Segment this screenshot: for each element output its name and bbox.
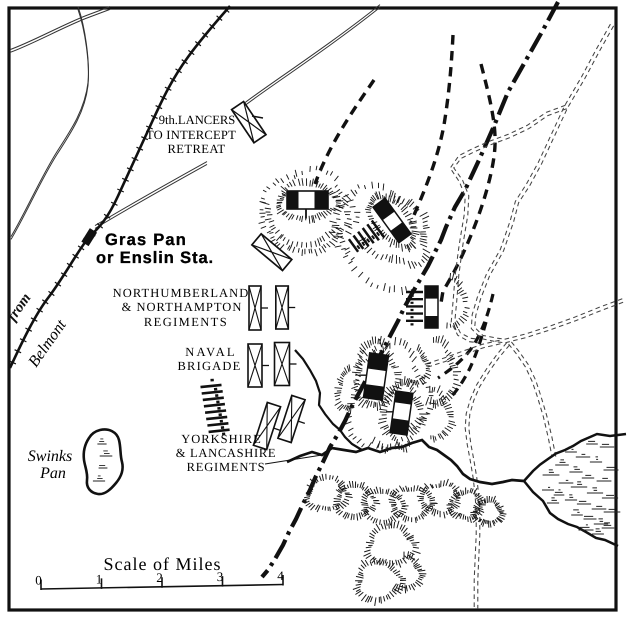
svg-text:Pan: Pan <box>39 465 66 482</box>
svg-text:REGIMENTS: REGIMENTS <box>187 460 266 474</box>
svg-text:TO INTERCEPT: TO INTERCEPT <box>146 128 236 142</box>
svg-text:4: 4 <box>277 568 284 583</box>
svg-text:& NORTHAMPTON: & NORTHAMPTON <box>122 300 243 314</box>
svg-text:BRIGADE: BRIGADE <box>178 359 242 373</box>
svg-text:1: 1 <box>96 571 103 586</box>
svg-text:3: 3 <box>217 569 224 584</box>
svg-text:YORKSHIRE: YORKSHIRE <box>181 432 262 446</box>
svg-text:NAVAL: NAVAL <box>185 345 237 359</box>
svg-text:RETREAT: RETREAT <box>167 142 225 156</box>
svg-text:REGIMENTS: REGIMENTS <box>144 315 228 329</box>
svg-text:2: 2 <box>156 570 163 585</box>
svg-text:9th.LANCERS: 9th.LANCERS <box>159 113 236 127</box>
svg-text:NORTHUMBERLAND: NORTHUMBERLAND <box>113 286 250 300</box>
svg-text:Swinks: Swinks <box>28 448 72 465</box>
svg-text:or Enslin Sta.: or Enslin Sta. <box>96 249 214 267</box>
svg-text:Gras Pan: Gras Pan <box>105 231 187 249</box>
svg-text:0: 0 <box>35 573 42 588</box>
svg-text:& LANCASHIRE: & LANCASHIRE <box>176 446 276 460</box>
